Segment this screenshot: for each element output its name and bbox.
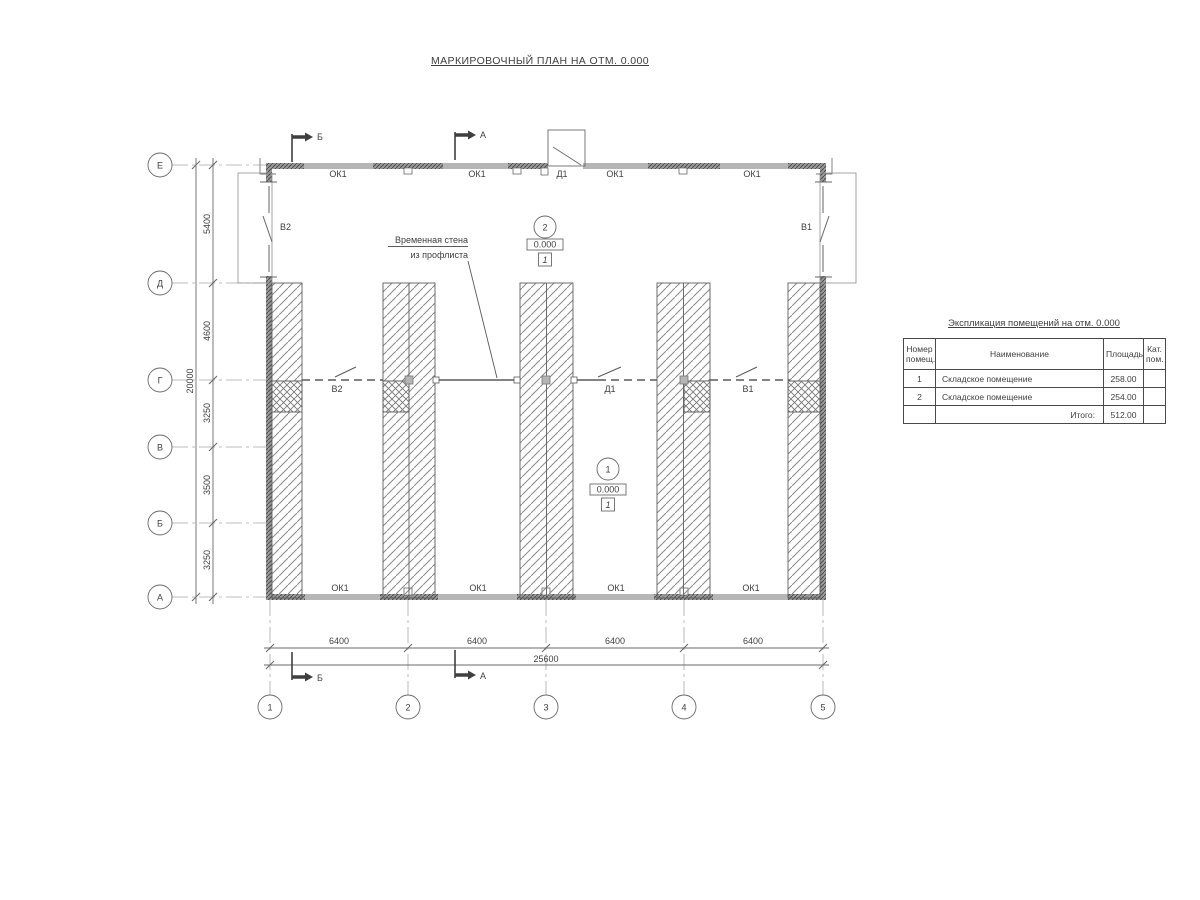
gate-v2-left (238, 173, 277, 283)
room-1-elevation: 0.000 (597, 485, 620, 495)
dim-v-b: 3500 (202, 475, 212, 495)
section-b-top-label: Б (317, 132, 323, 142)
room-2-floor-mark: 1 (542, 255, 547, 265)
table-header-row: Номер помещ. Наименование Площадь Кат. п… (904, 339, 1166, 370)
window-ok1-top-3: ОК1 (606, 169, 623, 179)
window-ok1-top-4: ОК1 (743, 169, 760, 179)
dim-2-3: 6400 (467, 636, 487, 646)
dim-b-a: 3250 (202, 550, 212, 570)
total-value: 512.00 (1104, 406, 1144, 424)
axis-label-3: 3 (543, 703, 548, 713)
window-ok1-top-2: ОК1 (468, 169, 485, 179)
floor-plan-drawing: Е Д Г В Б А 1 2 3 4 5 (0, 0, 1200, 900)
axis-label-d: Д (157, 279, 163, 289)
axis-label-1: 1 (267, 703, 272, 713)
room-schedule-table: Номер помещ. Наименование Площадь Кат. п… (903, 338, 1166, 424)
gate-v2-left-label: В2 (280, 222, 291, 232)
room-1-name: Складское помещение (936, 370, 1104, 388)
room-2-name: Складское помещение (936, 388, 1104, 406)
header-room-number: Номер помещ. (904, 339, 936, 370)
annotation-line1: Временная стена (395, 235, 468, 245)
room-2-area: 254.00 (1104, 388, 1144, 406)
piers (272, 283, 820, 598)
door-d1-top-label: Д1 (556, 169, 567, 179)
temp-wall-gate-v2-label: В2 (331, 384, 342, 394)
axis-label-4: 4 (681, 703, 686, 713)
total-empty-cell (904, 406, 936, 424)
dimension-labels-left: 5400 4600 3250 3500 3250 20000 (185, 214, 212, 570)
total-cat-empty (1144, 406, 1166, 424)
room-2-elevation: 0.000 (534, 240, 557, 250)
total-label: Итого: (936, 406, 1104, 424)
axis-label-2: 2 (405, 703, 410, 713)
room-1-cat (1144, 370, 1166, 388)
dim-1-2: 6400 (329, 636, 349, 646)
room-1-floor-mark: 1 (605, 500, 610, 510)
dim-3-4: 6400 (605, 636, 625, 646)
annotation-line2: из профлиста (410, 250, 468, 260)
room-1-num: 1 (904, 370, 936, 388)
dim-d-g: 4600 (202, 321, 212, 341)
table-row: 1 Складское помещение 258.00 (904, 370, 1166, 388)
room-schedule: Экспликация помещений на отм. 0.000 Номе… (903, 318, 1165, 424)
axis-label-e: Е (157, 161, 163, 171)
axis-label-a: А (157, 593, 163, 603)
window-ok1-bottom-3: ОК1 (607, 583, 624, 593)
dim-e-d: 5400 (202, 214, 212, 234)
gate-v1-right-label: В1 (801, 222, 812, 232)
section-b-bottom-label: Б (317, 673, 323, 683)
axis-label-v: В (157, 443, 163, 453)
section-a-bottom-label: А (480, 671, 486, 681)
room-marker-2: 2 0.000 1 (527, 216, 563, 266)
room-2-number: 2 (542, 223, 547, 233)
window-ok1-bottom-2: ОК1 (469, 583, 486, 593)
axis-label-b: Б (157, 519, 163, 529)
window-ok1-bottom-1: ОК1 (331, 583, 348, 593)
header-name: Наименование (936, 339, 1104, 370)
room-marker-1: 1 0.000 1 (590, 458, 626, 511)
floor-plan-sheet: МАРКИРОВОЧНЫЙ ПЛАН НА ОТМ. 0.000 (0, 0, 1200, 900)
axis-labels-left: Е Д Г В Б А (157, 161, 163, 603)
room-schedule-title: Экспликация помещений на отм. 0.000 (903, 318, 1165, 329)
header-category: Кат. пом. (1144, 339, 1166, 370)
header-area: Площадь (1104, 339, 1144, 370)
window-ok1-bottom-4: ОК1 (742, 583, 759, 593)
dim-g-v: 3250 (202, 403, 212, 423)
temp-wall-door-d1-label: Д1 (604, 384, 615, 394)
temp-wall-gate-v1-label: В1 (742, 384, 753, 394)
gate-v1-right (815, 173, 856, 283)
table-total-row: Итого: 512.00 (904, 406, 1166, 424)
room-2-num: 2 (904, 388, 936, 406)
axis-label-g: Г (158, 376, 163, 386)
dim-bottom-total: 25600 (533, 654, 558, 664)
dim-left-total: 20000 (185, 368, 195, 393)
section-a-top-label: А (480, 130, 486, 140)
room-1-number: 1 (605, 465, 610, 475)
room-1-area: 258.00 (1104, 370, 1144, 388)
table-row: 2 Складское помещение 254.00 (904, 388, 1166, 406)
axis-labels-bottom: 1 2 3 4 5 (267, 703, 825, 713)
room-2-cat (1144, 388, 1166, 406)
window-ok1-top-1: ОК1 (329, 169, 346, 179)
axis-label-5: 5 (820, 703, 825, 713)
dim-4-5: 6400 (743, 636, 763, 646)
